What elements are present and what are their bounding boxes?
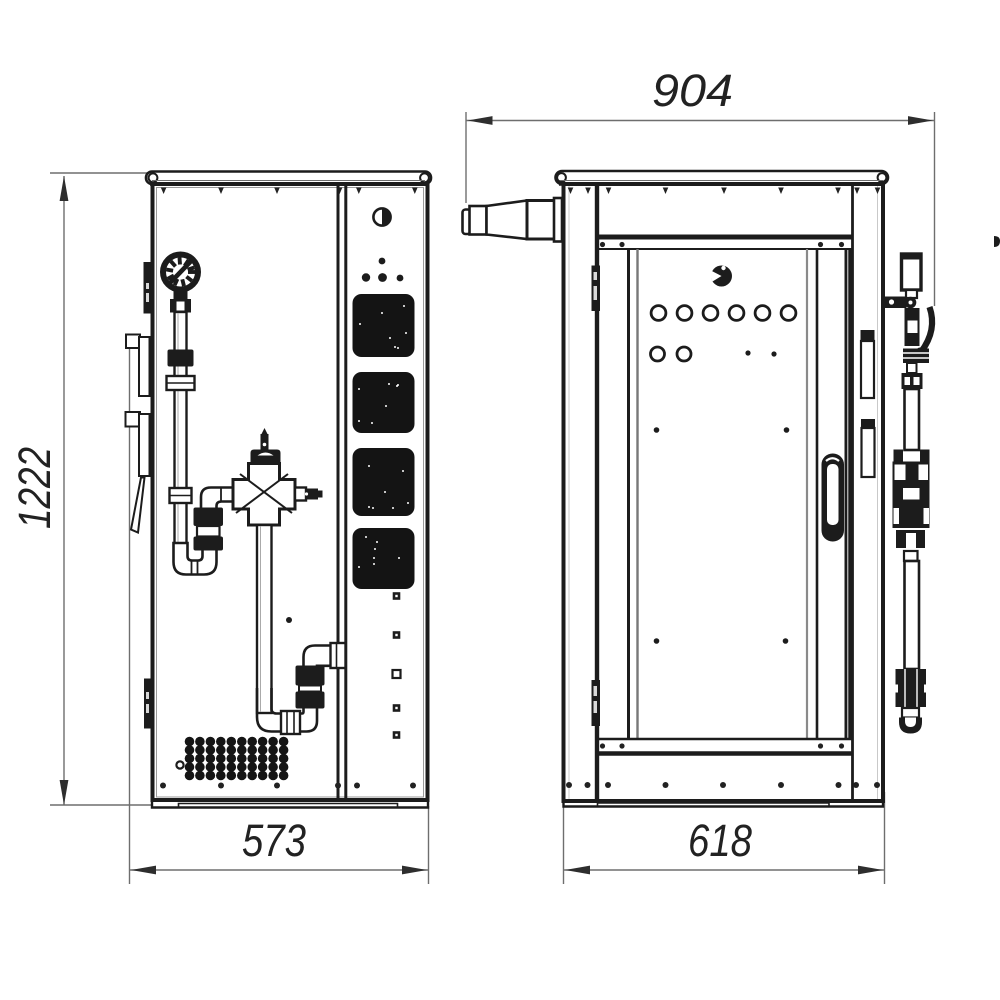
svg-text:1222: 1222 xyxy=(9,447,60,529)
svg-text:618: 618 xyxy=(688,815,752,866)
svg-text:904: 904 xyxy=(652,65,733,116)
svg-text:573: 573 xyxy=(242,815,306,866)
